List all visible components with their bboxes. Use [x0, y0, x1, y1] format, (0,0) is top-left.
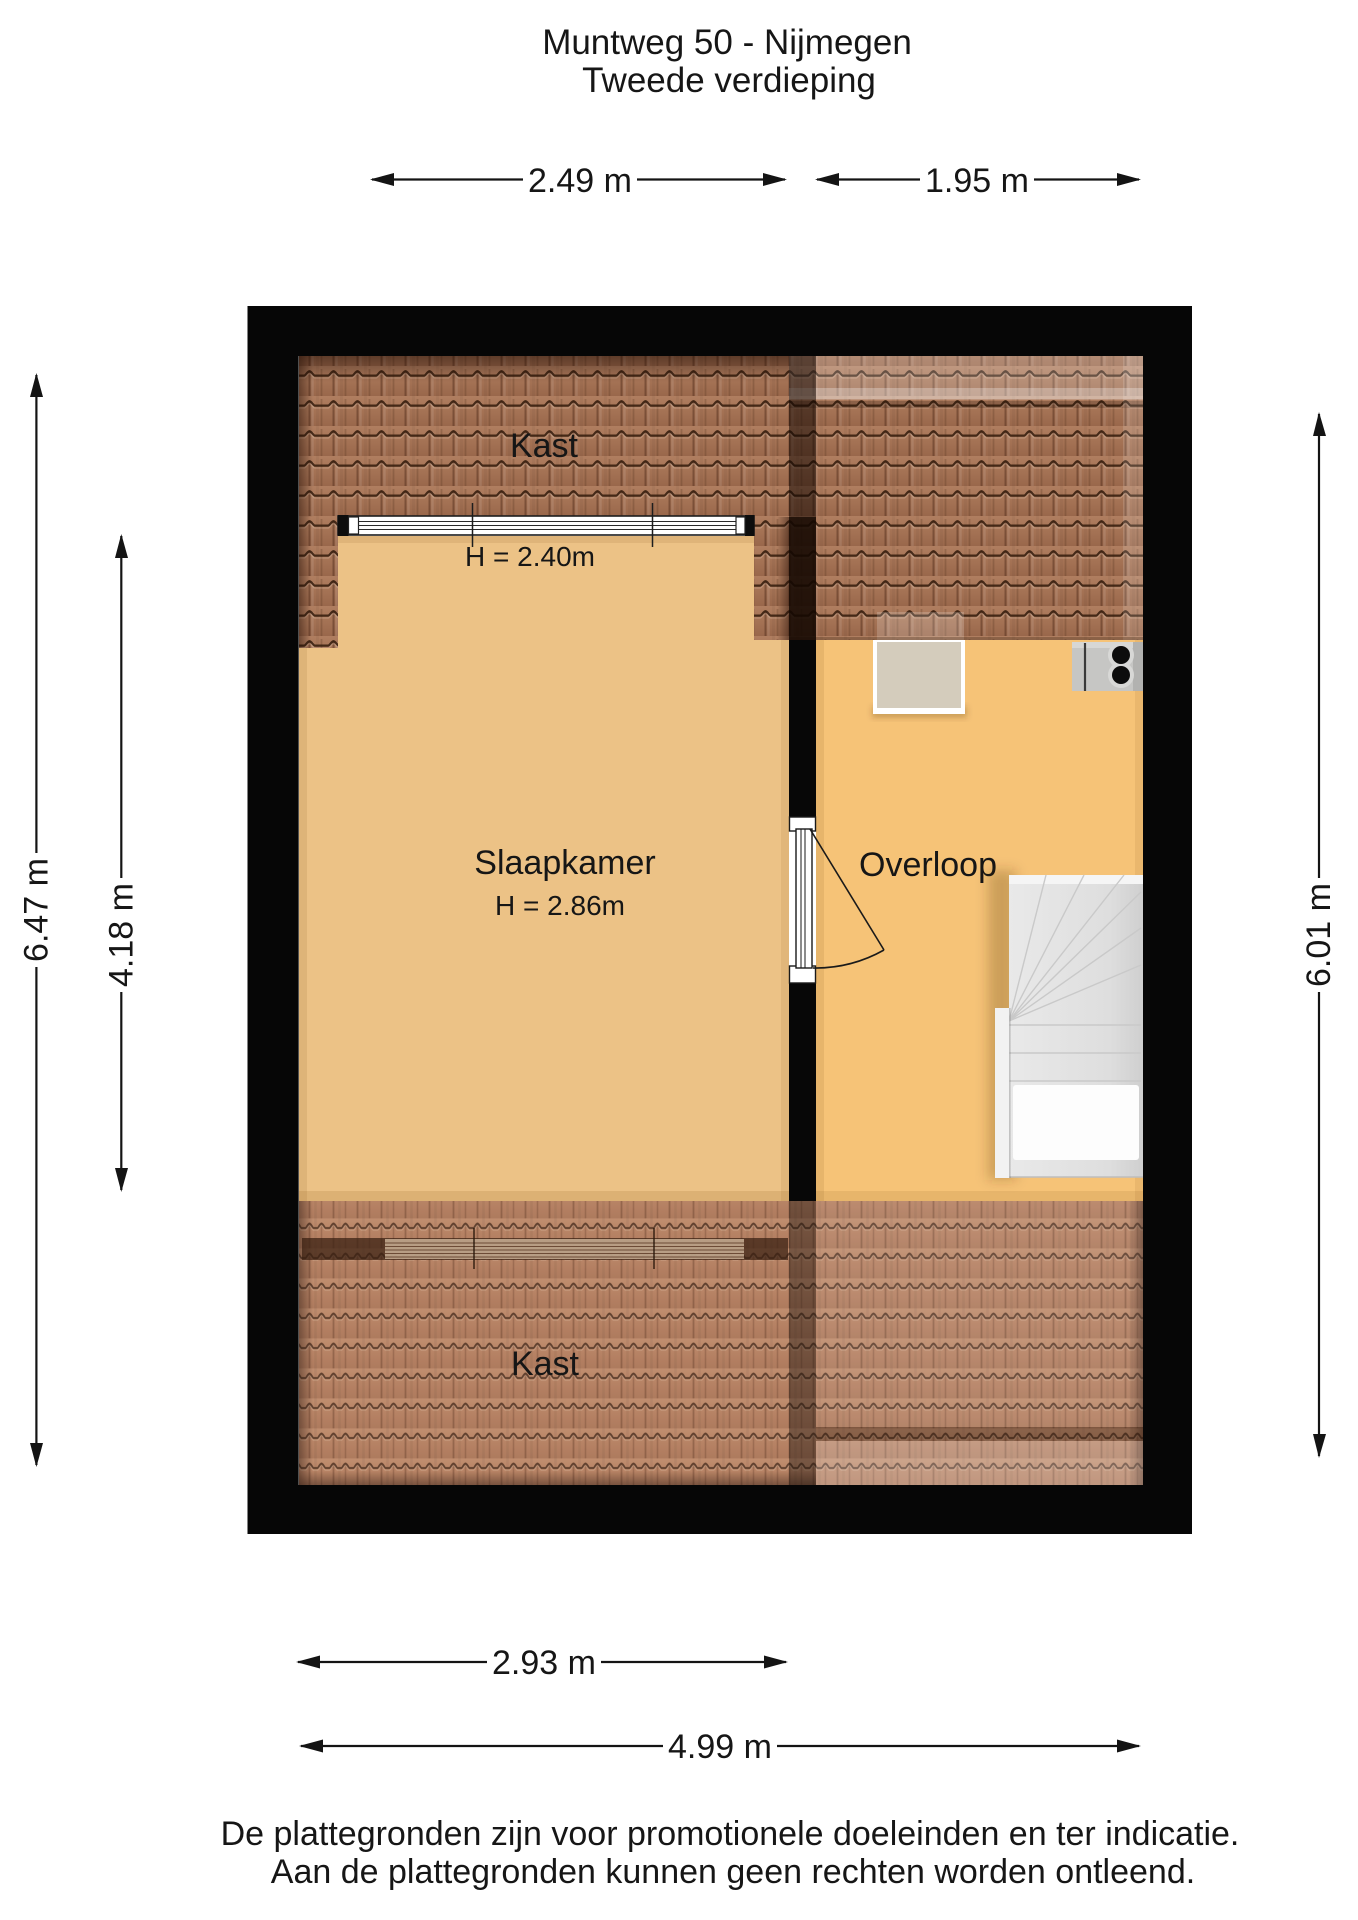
svg-text:4.18 m: 4.18 m [102, 883, 140, 987]
svg-text:Kast: Kast [511, 1345, 580, 1383]
svg-text:Tweede verdieping: Tweede verdieping [582, 61, 876, 100]
svg-text:1.95 m: 1.95 m [925, 162, 1029, 200]
svg-text:4.99 m: 4.99 m [668, 1728, 772, 1766]
svg-text:De plattegronden zijn voor pro: De plattegronden zijn voor promotionele … [221, 1815, 1240, 1853]
svg-text:6.01 m: 6.01 m [1300, 883, 1338, 987]
svg-text:Aan de plattegronden kunnen ge: Aan de plattegronden kunnen geen rechten… [271, 1853, 1195, 1891]
svg-text:H = 2.40m: H = 2.40m [465, 541, 595, 572]
svg-text:Kast: Kast [510, 427, 579, 465]
svg-text:H = 2.86m: H = 2.86m [495, 890, 625, 921]
svg-text:Muntweg 50 - Nijmegen: Muntweg 50 - Nijmegen [542, 23, 912, 62]
svg-text:2.49 m: 2.49 m [528, 162, 632, 200]
svg-text:2.93 m: 2.93 m [492, 1644, 596, 1682]
svg-text:Overloop: Overloop [859, 846, 997, 884]
svg-text:Slaapkamer: Slaapkamer [474, 844, 655, 882]
svg-text:6.47 m: 6.47 m [17, 858, 55, 962]
